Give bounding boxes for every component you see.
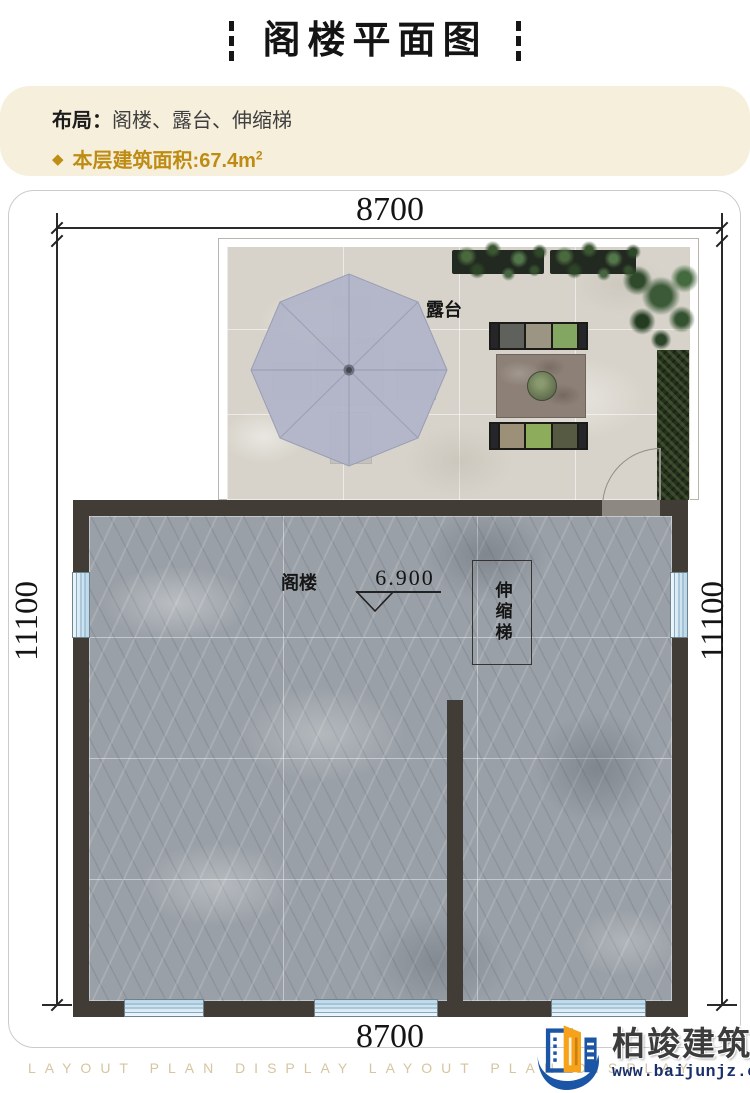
dimension-line-top xyxy=(57,227,722,229)
info-card: 布局：阁楼、露台、伸缩梯 ◆ 本层建筑面积:67.4m2 xyxy=(0,86,750,176)
title-dash-right-icon xyxy=(516,21,521,61)
brand-text-block: 柏竣建筑 www.baijunjz.com xyxy=(612,1027,750,1082)
door-leaf xyxy=(659,448,661,508)
ladder-box: 伸缩梯 xyxy=(472,560,532,665)
title-dash-left-icon xyxy=(229,21,234,61)
layout-label: 布局： xyxy=(52,110,112,132)
diamond-bullet-icon: ◆ xyxy=(52,150,64,168)
bench-armrest xyxy=(491,424,498,448)
bench-cushion xyxy=(526,424,550,448)
window-bottom-1 xyxy=(124,999,204,1017)
terrace-bench-south xyxy=(489,422,588,450)
window-bottom-3 xyxy=(551,999,646,1017)
area-line: ◆ 本层建筑面积:67.4m2 xyxy=(52,144,750,173)
layout-line: 布局：阁楼、露台、伸缩梯 xyxy=(52,104,750,133)
bench-cushion xyxy=(553,324,577,348)
door-threshold xyxy=(602,500,660,516)
brand-url[interactable]: www.baijunjz.com xyxy=(612,1062,750,1081)
area-value: 本层建筑面积:67.4m2 xyxy=(73,144,263,173)
brand-logo[interactable]: 柏竣建筑 www.baijunjz.com xyxy=(529,1016,750,1092)
terrace-bench-north xyxy=(489,322,588,350)
dim-stub-bottom-right xyxy=(707,1004,737,1006)
bench-armrest xyxy=(579,424,586,448)
brand-logo-icon xyxy=(529,1016,607,1092)
dimension-right: 11100 xyxy=(697,541,737,701)
bench-armrest xyxy=(579,324,586,348)
window-right xyxy=(670,572,688,638)
elevation-triangle-icon xyxy=(355,591,395,613)
dim-stub-bottom-left xyxy=(42,1004,72,1006)
dimension-line-left xyxy=(56,241,58,1005)
window-bottom-2 xyxy=(314,999,438,1017)
bench-cushion xyxy=(553,424,577,448)
floor-plan-page: 阁楼平面图 布局：阁楼、露台、伸缩梯 ◆ 本层建筑面积:67.4m2 8700 … xyxy=(0,0,750,1093)
dimension-top: 8700 xyxy=(315,193,465,227)
bench-cushion xyxy=(500,424,524,448)
planter-foliage-1 xyxy=(446,238,550,284)
patio-umbrella xyxy=(249,272,449,468)
layout-value: 阁楼、露台、伸缩梯 xyxy=(112,110,292,132)
dimension-left: 11100 xyxy=(11,541,51,701)
planting-strip xyxy=(657,350,689,500)
ladder-label: 伸缩梯 xyxy=(494,581,511,644)
elevation-value: 6.900 xyxy=(360,567,450,589)
bench-cushion xyxy=(526,324,550,348)
attic-label: 阁楼 xyxy=(281,574,317,592)
bench-armrest xyxy=(491,324,498,348)
attic-interior-wall xyxy=(447,700,463,1005)
terrace-label: 露台 xyxy=(426,301,462,319)
terrace-tree xyxy=(614,250,708,352)
dimension-bottom: 8700 xyxy=(315,1020,465,1054)
page-header: 阁楼平面图 xyxy=(0,10,750,72)
bench-cushion xyxy=(500,324,524,348)
page-title: 阁楼平面图 xyxy=(262,22,487,60)
window-left xyxy=(72,572,90,638)
brand-name: 柏竣建筑 xyxy=(612,1027,750,1062)
area-superscript: 2 xyxy=(256,148,263,162)
round-planter xyxy=(527,371,557,401)
